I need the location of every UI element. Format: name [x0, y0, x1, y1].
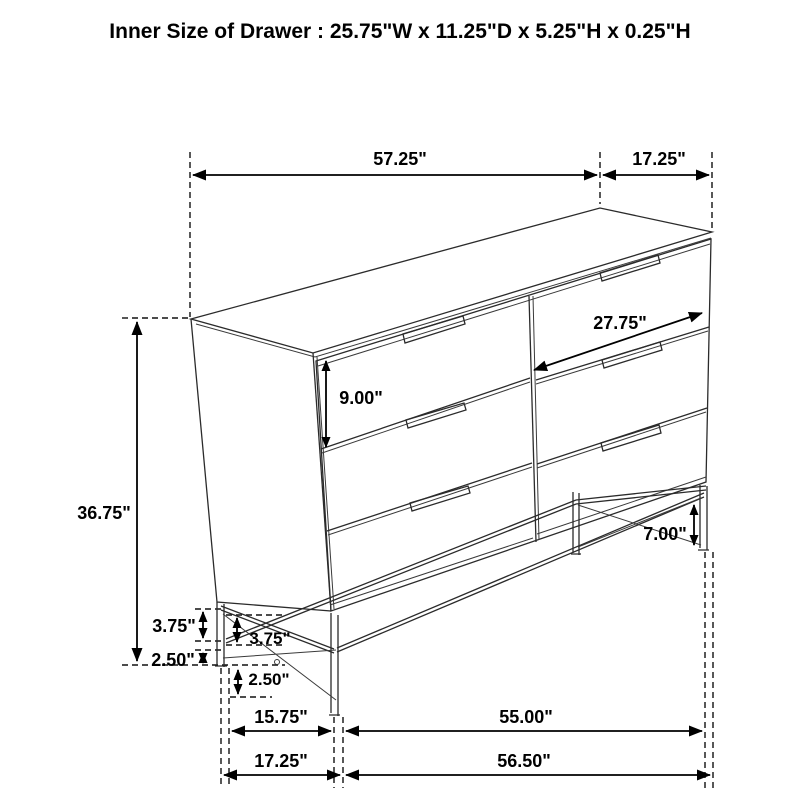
dim-label-leg-height: 7.00"	[643, 524, 687, 544]
dim-label-base-upper-inner: 3.75"	[249, 629, 290, 648]
front-left-leg	[329, 613, 340, 716]
drawer-handle	[601, 425, 661, 451]
dim-label-base-width-outer: 56.50"	[497, 751, 551, 771]
dresser-front-face	[316, 239, 711, 611]
drawer-handle	[602, 342, 662, 368]
dimension-diagram-page: Inner Size of Drawer : 25.75"W x 11.25"D…	[0, 0, 800, 800]
dim-label-base-depth-inner: 15.75"	[254, 707, 308, 727]
dim-label-base-width-inner: 55.00"	[499, 707, 553, 727]
center-divider	[529, 296, 536, 542]
extension-lines	[122, 152, 713, 788]
right-side-stretcher	[576, 486, 706, 504]
dimension-labels: 57.25" 17.25" 36.75" 9.00" 27.75" 7.00" …	[77, 149, 687, 771]
dim-label-top-depth: 17.25"	[632, 149, 686, 169]
dim-label-base-lower-outer: 2.50"	[151, 650, 195, 670]
dresser-dimension-drawing: 57.25" 17.25" 36.75" 9.00" 27.75" 7.00" …	[0, 0, 800, 800]
dim-label-base-upper-outer: 3.75"	[152, 616, 196, 636]
dim-label-drawer-width: 27.75"	[593, 313, 647, 333]
dim-label-base-lower-inner: 2.50"	[248, 670, 289, 689]
drawer-handle	[600, 255, 660, 281]
dim-label-drawer-height: 9.00"	[339, 388, 383, 408]
dresser-top	[191, 208, 712, 357]
dresser-left-side-panel	[191, 319, 334, 611]
brace-screw	[275, 660, 280, 665]
drawer-handle	[410, 486, 470, 511]
dim-label-base-depth-outer: 17.25"	[254, 751, 308, 771]
dim-label-top-width: 57.25"	[373, 149, 427, 169]
dim-label-overall-height: 36.75"	[77, 503, 131, 523]
